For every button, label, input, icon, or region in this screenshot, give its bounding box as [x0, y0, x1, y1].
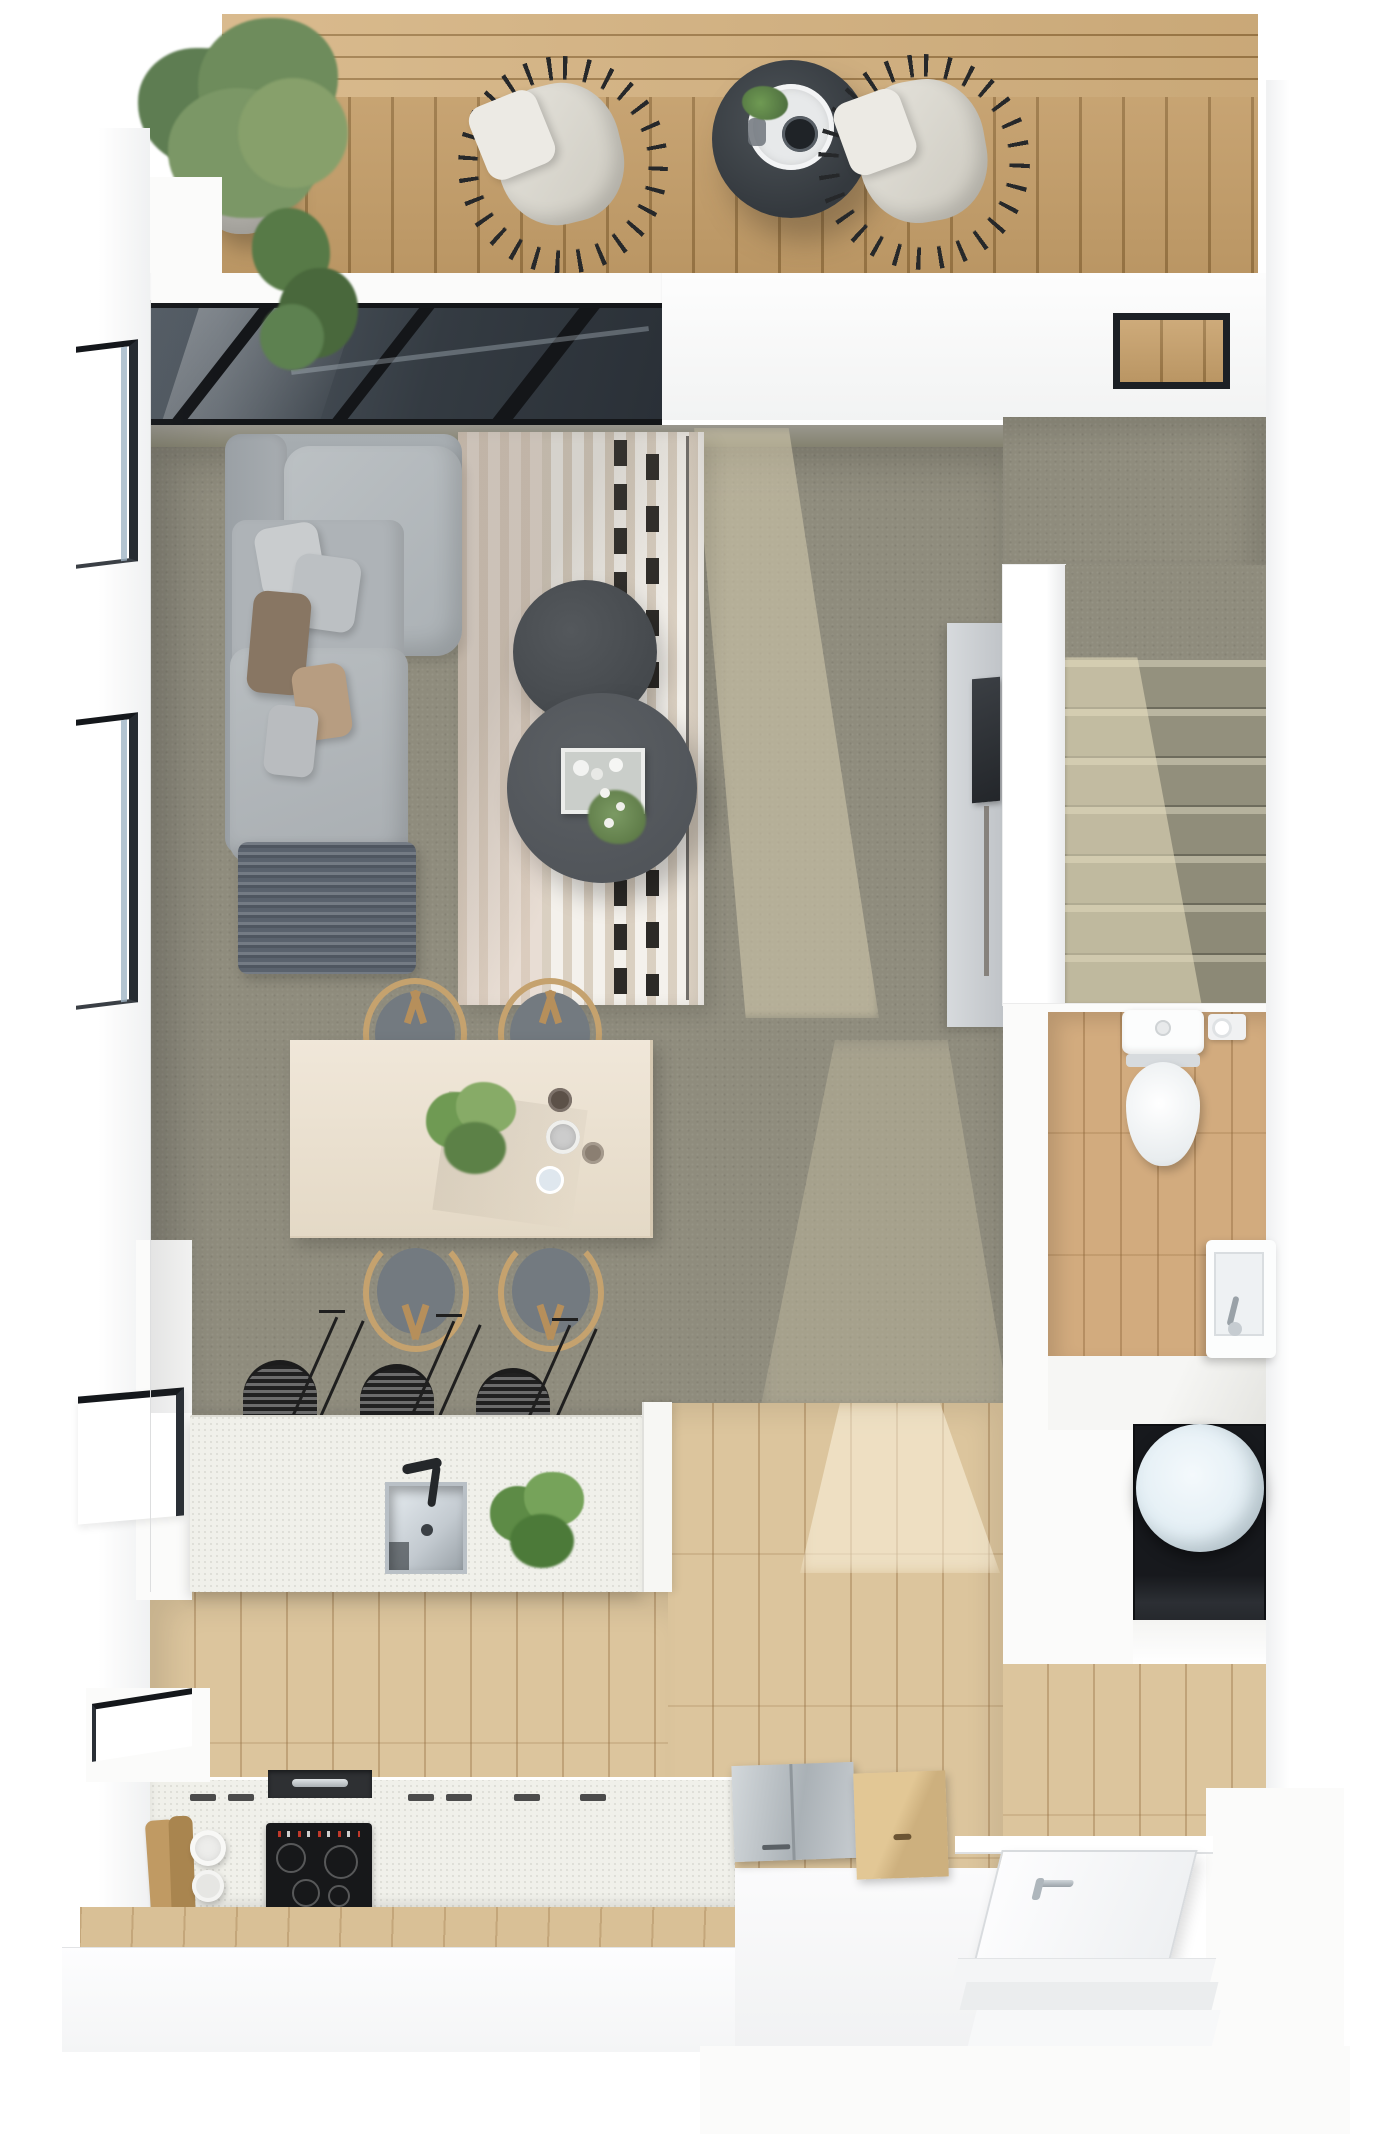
stairwell-left-wall: [1003, 565, 1065, 1005]
cabinet-handle: [228, 1794, 254, 1801]
kitchen-floor-front-strip: [80, 1907, 735, 1949]
paper-towel-roll: [190, 1830, 226, 1866]
sink-shadow-edge: [389, 1542, 409, 1570]
sofa-sectional: [225, 434, 465, 979]
door-handle-rose: [1031, 1878, 1044, 1900]
entry-step: [952, 1958, 1216, 1983]
dining-table: [290, 1040, 653, 1238]
wicker-lounge-chair-left: [458, 56, 668, 274]
burner: [324, 1845, 358, 1879]
tray-flowers: [588, 790, 646, 844]
tv-screen: [972, 677, 1000, 803]
cabinet-handle: [446, 1794, 472, 1801]
skylight-glass-roof: [150, 303, 662, 425]
cabinet-handle: [514, 1794, 540, 1801]
table-plant: [742, 86, 788, 120]
tv-cable: [984, 806, 989, 976]
burner: [328, 1885, 350, 1907]
cooktop-controls: [278, 1831, 360, 1837]
cooktop-recess: [268, 1770, 372, 1798]
pillow-grey-3: [262, 704, 319, 779]
wall-bottom: [62, 1947, 742, 2052]
wall-edge-line: [150, 300, 151, 1592]
wall-bottom-right: [700, 2046, 1350, 2134]
cutting-board-2: [168, 1816, 195, 1915]
sink-tap-knob: [1228, 1322, 1242, 1336]
window-middle-left: [76, 712, 138, 1010]
centerpiece-plant: [426, 1082, 522, 1178]
table-cup-2: [582, 1142, 604, 1164]
table-plate: [536, 1166, 564, 1194]
cabinet-handle: [408, 1794, 434, 1801]
entry-step: [960, 1982, 1219, 2010]
toilet-button: [1155, 1020, 1171, 1036]
coffee-cup: [782, 116, 818, 152]
kitchen-counter: [150, 1777, 735, 1907]
carpet-top-right: [1003, 417, 1266, 565]
wicker-lounge-chair-right: [818, 54, 1030, 270]
toilet-paper-holder: [1208, 1014, 1246, 1040]
entry-door: [974, 1850, 1197, 1960]
cabinet-handle: [190, 1794, 216, 1801]
island-sink: [385, 1482, 467, 1574]
paper-towel-roll-2: [192, 1870, 224, 1902]
window-lower-left: [78, 1387, 184, 1524]
sink-drain: [421, 1524, 433, 1536]
appliance-wood-lid: [853, 1770, 949, 1879]
stair-landing: [1065, 565, 1266, 660]
flower-white: [604, 818, 614, 828]
kitchen-island: [190, 1415, 642, 1592]
appliance-steel-lid: [731, 1762, 856, 1862]
staircase: [1065, 565, 1266, 1005]
burner: [276, 1843, 306, 1873]
window-upper-left: [76, 339, 138, 569]
island-plant: [490, 1470, 590, 1570]
induction-cooktop: [266, 1823, 372, 1915]
bathroom-vanity-band: [1048, 1356, 1266, 1430]
toilet-paper-roll: [1212, 1018, 1232, 1038]
table-vase: [748, 118, 766, 146]
floorplan-render: [0, 0, 1400, 2134]
skylight-beam: [470, 303, 606, 425]
entry-step: [967, 2010, 1220, 2048]
cabinet-handle: [580, 1794, 606, 1801]
clerestory-window: [1113, 313, 1230, 389]
hanging-plant-over-skylight: [252, 208, 362, 378]
island-end-panel: [642, 1402, 672, 1592]
bathroom-sink: [1206, 1240, 1276, 1358]
throw-blanket: [238, 842, 416, 974]
cooktop-rail: [292, 1779, 348, 1787]
burner: [292, 1879, 320, 1907]
water-tank: [1136, 1424, 1264, 1552]
closet-sill: [1133, 1620, 1266, 1664]
flower-white: [600, 788, 610, 798]
table-bowl: [546, 1120, 580, 1154]
flower-white: [616, 802, 625, 811]
table-cup: [548, 1088, 572, 1112]
